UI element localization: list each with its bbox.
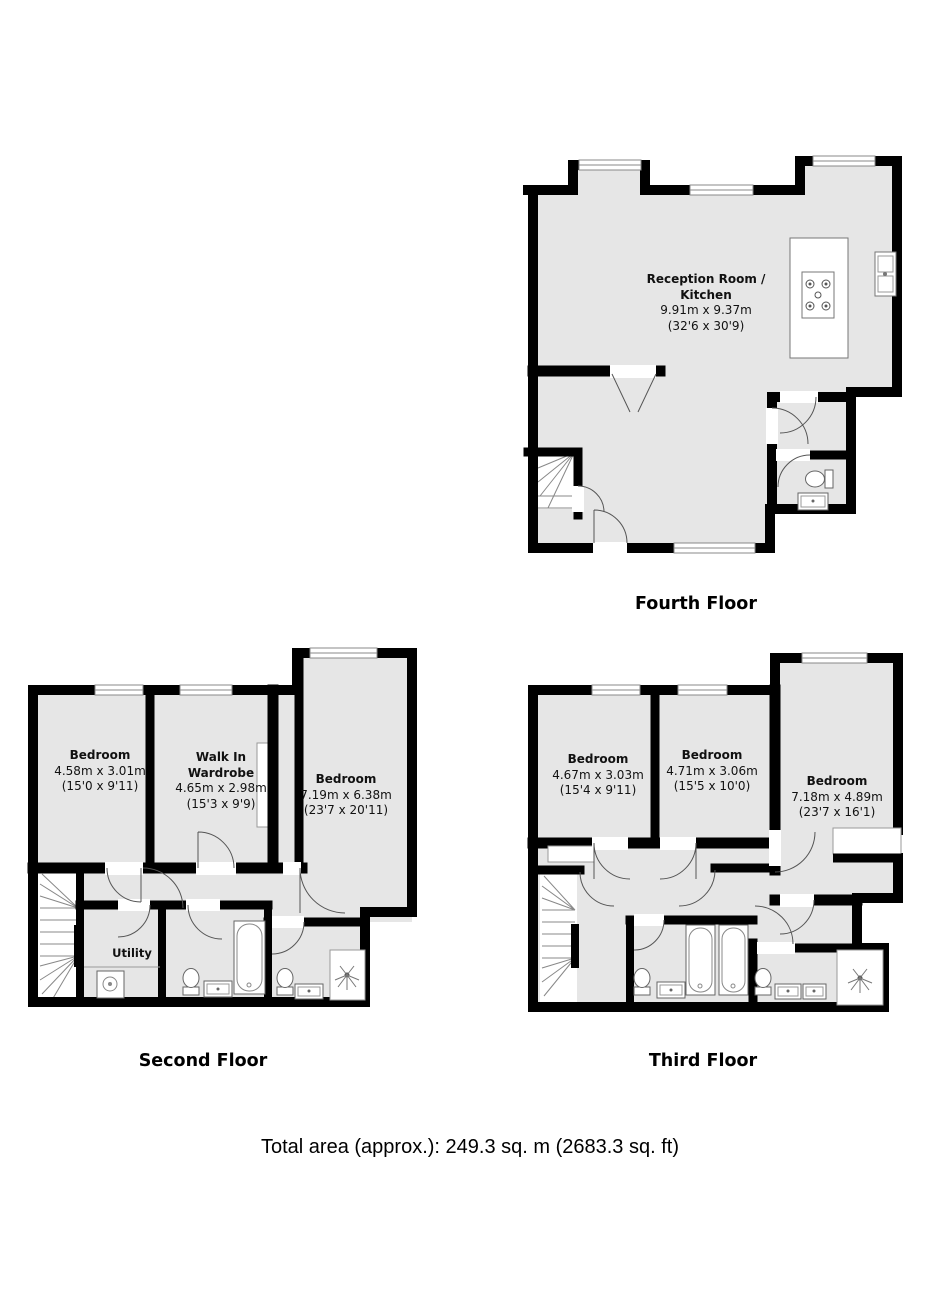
- stairwell: [38, 868, 80, 1002]
- room-label-bedroom: Bedroom 4.58m x 3.01m (15'0 x 9'11): [30, 748, 170, 795]
- room-name: Utility: [112, 946, 152, 960]
- floorplan-page: Reception Room / Kitchen 9.91m x 9.37m (…: [0, 0, 940, 1301]
- room-dims-imperial: (15'0 x 9'11): [30, 779, 170, 795]
- third-floor-plan: [533, 653, 903, 1007]
- room-dims-imperial: (32'6 x 30'9): [616, 319, 796, 335]
- room-name: Kitchen: [616, 288, 796, 304]
- stair-divider-wall: [571, 924, 579, 968]
- room-dims-imperial: (23'7 x 20'11): [276, 803, 416, 819]
- toilet-icon: [806, 470, 834, 488]
- room-name: Wardrobe: [161, 766, 281, 782]
- room-name: Bedroom: [30, 748, 170, 764]
- floor-title-third: Third Floor: [603, 1051, 803, 1071]
- room-name: Bedroom: [767, 774, 907, 790]
- room-name: Walk In: [161, 750, 281, 766]
- room-label-walk-in-wardrobe: Walk In Wardrobe 4.65m x 2.98m (15'3 x 9…: [161, 750, 281, 812]
- total-area-text: Total area (approx.): 249.3 sq. m (2683.…: [170, 1136, 770, 1159]
- floor-title-fourth: Fourth Floor: [596, 594, 796, 614]
- bedroom-recess: [833, 828, 901, 854]
- room-dims-metric: 7.18m x 4.89m: [767, 790, 907, 806]
- room-dims-imperial: (23'7 x 16'1): [767, 805, 907, 821]
- floor-title-second: Second Floor: [103, 1051, 303, 1071]
- room-name: Bedroom: [276, 772, 416, 788]
- room-label-utility: Utility: [97, 946, 167, 960]
- room-name: Reception Room /: [616, 272, 796, 288]
- room-label-bedroom: Bedroom 7.18m x 4.89m (23'7 x 16'1): [767, 774, 907, 821]
- room-dims-imperial: (15'3 x 9'9): [161, 797, 281, 813]
- room-label-reception-kitchen: Reception Room / Kitchen 9.91m x 9.37m (…: [616, 272, 796, 334]
- room-name: Bedroom: [642, 748, 782, 764]
- shower-sprinkler-icon: [330, 950, 365, 1000]
- sink-icon: [798, 493, 828, 510]
- hob-icon: [802, 272, 834, 318]
- kitchen-sink-icon: [875, 252, 896, 296]
- room-dims-metric: 4.65m x 2.98m: [161, 781, 281, 797]
- room-label-bedroom: Bedroom 4.71m x 3.06m (15'5 x 10'0): [642, 748, 782, 795]
- second-floor-plan: [33, 648, 412, 1002]
- room-dims-metric: 7.19m x 6.38m: [276, 788, 416, 804]
- shower-sprinkler-icon: [837, 950, 883, 1005]
- floorplan-drawing: [0, 0, 940, 1301]
- room-label-bedroom: Bedroom 7.19m x 6.38m (23'7 x 20'11): [276, 772, 416, 819]
- room-dims-metric: 4.58m x 3.01m: [30, 764, 170, 780]
- room-dims-metric: 4.71m x 3.06m: [642, 764, 782, 780]
- fourth-floor-plan: [528, 156, 897, 554]
- bathtub-icon: [234, 921, 265, 994]
- room-dims-imperial: (15'5 x 10'0): [642, 779, 782, 795]
- room-dims-metric: 9.91m x 9.37m: [616, 303, 796, 319]
- bedroom-recess: [548, 846, 594, 862]
- stair-closet: [538, 455, 574, 509]
